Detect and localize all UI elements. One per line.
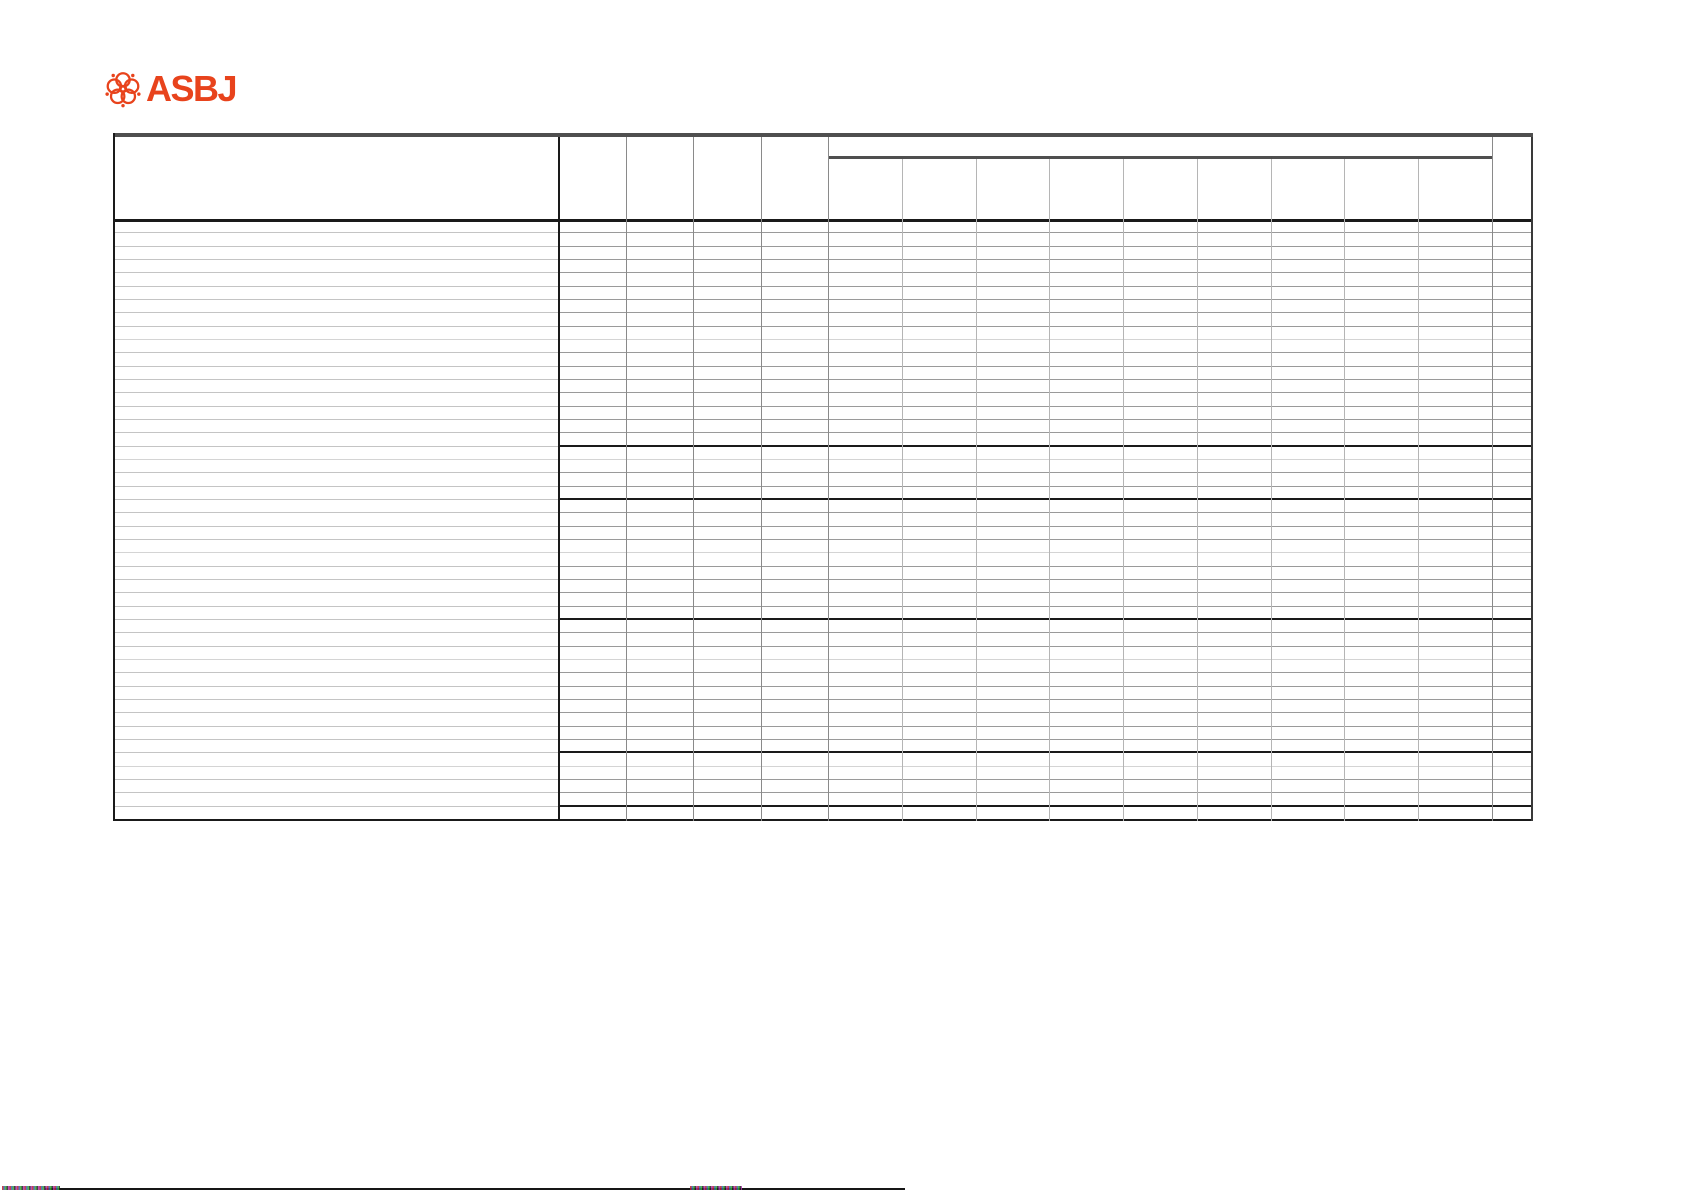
row-label-header-cell <box>113 137 558 219</box>
asbj-logo: ASBJ <box>103 68 236 110</box>
narrow-header-cell-1 <box>558 137 626 219</box>
subcolumn-header-cell-2 <box>902 159 976 219</box>
group-header-cell <box>828 137 1492 156</box>
logo-text: ASBJ <box>146 69 236 109</box>
subcolumn-header-cell-5 <box>1123 159 1197 219</box>
subcolumn-header-cell-6 <box>1197 159 1271 219</box>
page: ASBJ <box>0 0 1685 1192</box>
subcolumn-header-cell-4 <box>1049 159 1123 219</box>
asbj-blossom-icon <box>103 68 143 110</box>
narrow-header-cell-4 <box>761 137 829 219</box>
form-table <box>113 133 1533 821</box>
narrow-header-cell-2 <box>626 137 694 219</box>
subcolumn-header-cell-8 <box>1344 159 1418 219</box>
subcolumn-header-cell-1 <box>828 159 902 219</box>
subcolumn-header-cell-7 <box>1271 159 1345 219</box>
subcolumn-header-cell-9 <box>1418 159 1492 219</box>
microtext-center <box>690 1186 742 1190</box>
corner-header-cell <box>1492 137 1533 219</box>
narrow-header-cell-3 <box>693 137 761 219</box>
microtext-left <box>2 1186 60 1190</box>
table-body <box>113 219 1533 821</box>
subcolumn-header-cell-3 <box>976 159 1050 219</box>
footer-rule <box>45 1188 905 1190</box>
